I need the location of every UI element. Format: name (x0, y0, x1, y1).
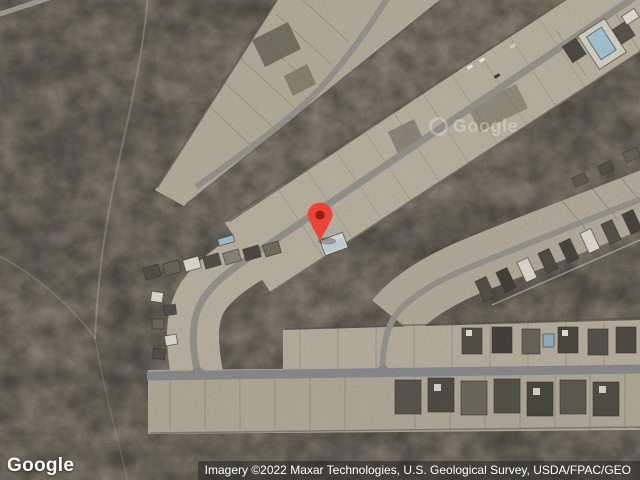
attribution-bar: Imagery ©2022 Maxar Technologies, U.S. G… (198, 461, 640, 480)
pin-inner-dot (315, 210, 324, 219)
map-viewport[interactable]: Google Google Imagery ©2022 Maxar Techno… (0, 0, 640, 480)
google-logo[interactable]: Google (7, 455, 74, 477)
attribution-text: Imagery ©2022 Maxar Technologies, U.S. G… (205, 463, 631, 477)
